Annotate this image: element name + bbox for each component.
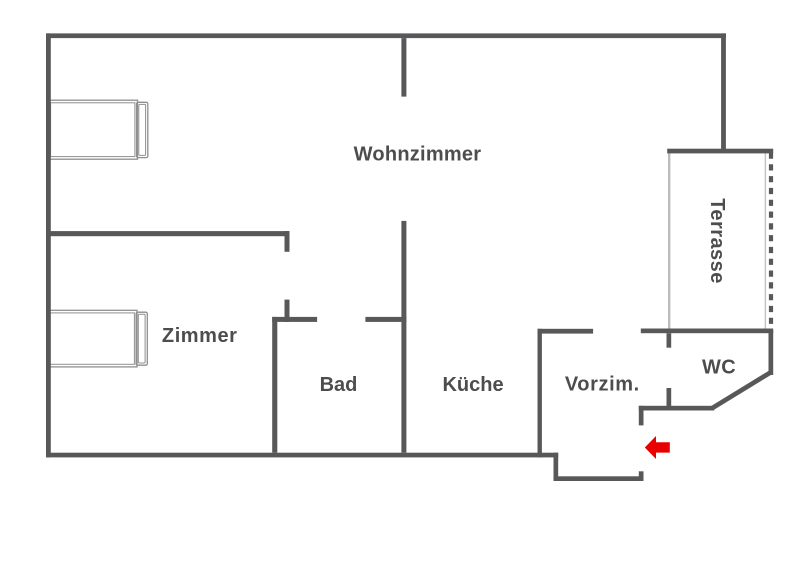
svg-text:Küche: Küche — [442, 374, 503, 396]
svg-text:Terrasse: Terrasse — [706, 198, 728, 284]
svg-text:Bad: Bad — [320, 374, 358, 396]
svg-text:Wohnzimmer: Wohnzimmer — [354, 143, 482, 165]
svg-text:WC: WC — [702, 357, 736, 379]
svg-text:Zimmer: Zimmer — [162, 325, 238, 347]
svg-text:Vorzim.: Vorzim. — [565, 374, 640, 396]
